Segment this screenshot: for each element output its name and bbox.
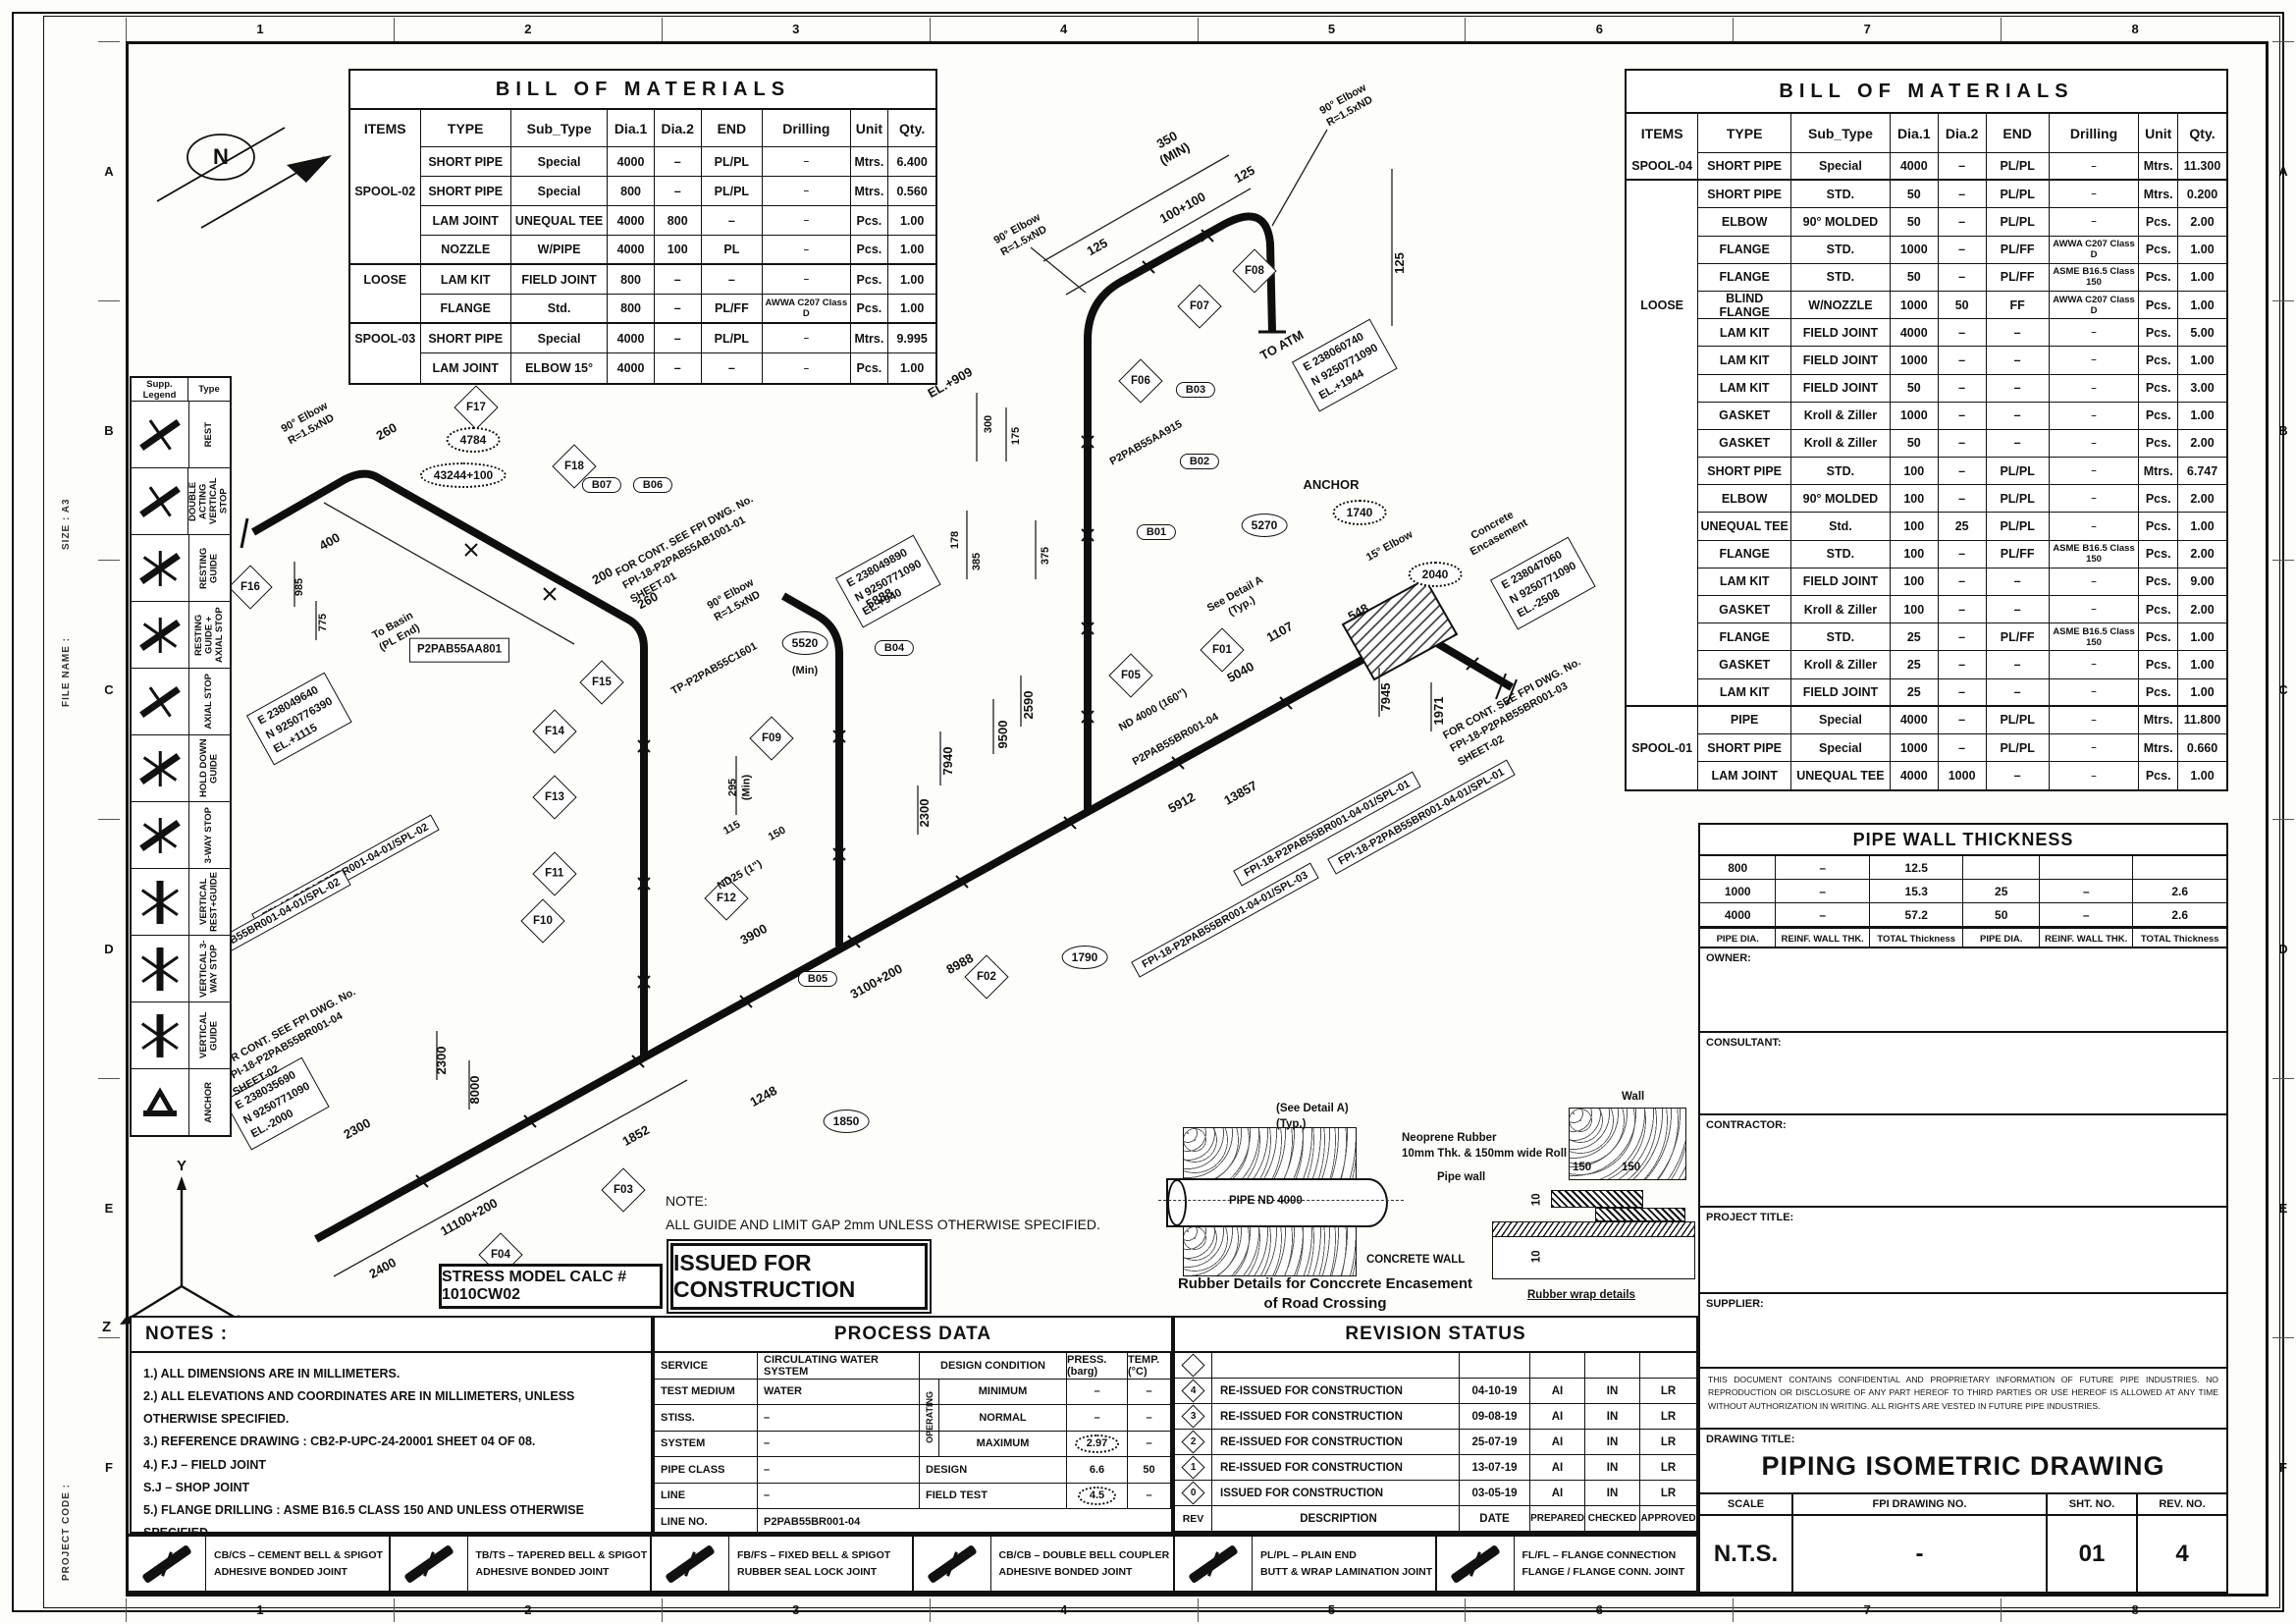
- note-line: 2.) ALL ELEVATIONS AND COORDINATES ARE I…: [143, 1385, 639, 1431]
- cell-subtype: Kroll & Ziller: [1791, 651, 1891, 678]
- dim-150-b: 150: [1622, 1161, 1640, 1176]
- table-row: FLANGE Std. 800 – PL/FF AWWA C207 Class …: [350, 295, 935, 324]
- footer-cell: APPROVED: [1640, 1506, 1696, 1532]
- pd-temp: –: [1128, 1484, 1171, 1510]
- support-symbol-icon: [132, 869, 189, 935]
- project-title-box: PROJECT TITLE:: [1698, 1208, 2228, 1294]
- joint-legend-item: FB/FS – FIXED BELL & SPIGOT RUBBER SEAL …: [652, 1537, 914, 1591]
- revision-footer: REV DESCRIPTION DATE PREPARED CHECKED AP…: [1175, 1506, 1696, 1532]
- cell-end: –: [702, 353, 764, 383]
- cell-dia2: –: [1939, 541, 1987, 568]
- support-legend-row: REST: [132, 402, 230, 468]
- page-title: PIPING ISOMETRIC DRAWING: [1706, 1451, 2220, 1482]
- note-line: 1.) ALL DIMENSIONS ARE IN MILLIMETERS.: [143, 1363, 639, 1385]
- rev-description: RE-ISSUED FOR CONSTRUCTION: [1212, 1379, 1460, 1404]
- cell-unit: Mtrs.: [851, 177, 889, 206]
- rev-description: ISSUED FOR CONSTRUCTION: [1212, 1481, 1460, 1506]
- axis-triad-icon: Y X Z: [102, 1158, 263, 1335]
- joint-symbol-icon: [1175, 1537, 1253, 1591]
- rev-approved: LR: [1640, 1430, 1696, 1455]
- support-symbol-icon: [132, 1069, 189, 1136]
- joint-code-label: TB/TS – TAPERED BELL & SPIGOT: [476, 1547, 651, 1564]
- cell-subtype: W/PIPE: [511, 236, 608, 265]
- cell-dia1: 800: [608, 265, 655, 295]
- table-row: LOOSE BLIND FLANGE W/NOZZLE 1000 50 FF A…: [1627, 292, 2226, 319]
- table-row: LAM JOINT UNEQUAL TEE 4000 1000 – – Pcs.…: [1627, 762, 2226, 789]
- cell-type: GASKET: [1698, 430, 1791, 458]
- cell-subtype: FIELD JOINT: [1791, 679, 1891, 707]
- revision-row: 1 RE-ISSUED FOR CONSTRUCTION 13-07-19 AI…: [1175, 1455, 1696, 1481]
- cell-drilling: –: [2050, 208, 2140, 236]
- cell: 12.5: [1870, 856, 1964, 880]
- cell-drilling: –: [2050, 375, 2140, 403]
- consultant-label: CONSULTANT:: [1706, 1037, 1782, 1049]
- note-line: 3.) REFERENCE DRAWING : CB2-P-UPC-24-200…: [143, 1431, 639, 1453]
- consultant-box: CONSULTANT:: [1698, 1033, 2228, 1115]
- cell-end: PL/PL: [702, 177, 764, 206]
- concrete-block-bottom: [1183, 1225, 1357, 1276]
- rubber-detail-caption: Rubber Details for Conccrete Encasement …: [1163, 1274, 1487, 1315]
- cell-qty: 2.00: [2178, 541, 2226, 568]
- cell-end: –: [1987, 430, 2050, 458]
- cell-end: –: [1987, 568, 2050, 596]
- col-header: Sub_Type: [1791, 114, 1891, 153]
- wall-thickness-body: 800 – 12.5 1000 – 15.3 25 – 2.6: [1700, 856, 2226, 927]
- support-type-label: 3-WAY STOP: [189, 802, 230, 868]
- cell-unit: Pcs.: [851, 353, 889, 383]
- joint-symbol-icon: [129, 1537, 206, 1591]
- cell-qty: 3.00: [2178, 375, 2226, 403]
- footer-cell: DESCRIPTION: [1212, 1506, 1460, 1532]
- cell-items: [1627, 513, 1698, 540]
- cell-type: GASKET: [1698, 596, 1791, 623]
- dim-label: 775: [317, 614, 331, 631]
- table-row: LAM KIT FIELD JOINT 100 – – – Pcs. 9.00: [1627, 568, 2226, 596]
- pd-value: WATER: [758, 1380, 920, 1406]
- cell: [2040, 856, 2134, 880]
- cell-subtype: Kroll & Ziller: [1791, 430, 1891, 458]
- cell-end: PL/PL: [702, 147, 764, 177]
- cell: [1963, 856, 2039, 880]
- col-header: TYPE: [1698, 114, 1791, 153]
- dim-label: 2300: [917, 799, 933, 828]
- revision-title: REVISION STATUS: [1175, 1318, 1696, 1353]
- pd-label: STISS.: [655, 1405, 758, 1432]
- cell-unit: Mtrs.: [2139, 181, 2178, 208]
- cell-dia2: –: [1939, 153, 1987, 181]
- cell-dia2: –: [1939, 264, 1987, 292]
- cell-type: LAM KIT: [1698, 319, 1791, 347]
- cell-type: FLANGE: [421, 295, 511, 324]
- cell-unit: Pcs.: [2139, 623, 2178, 651]
- cell-unit: Pcs.: [2139, 208, 2178, 236]
- rev-prepared: AI: [1530, 1379, 1585, 1404]
- dim-10-a: 10: [1530, 1193, 1546, 1206]
- cell-items: [1627, 181, 1698, 208]
- cell-dia1: 50: [1891, 208, 1939, 236]
- rev-no-label: REV. NO.: [2138, 1494, 2226, 1516]
- rubber-wrap-caption: Rubber wrap details: [1527, 1288, 1635, 1304]
- rev-date: 04-10-19: [1460, 1379, 1530, 1404]
- cell-drilling: –: [2050, 430, 2140, 458]
- drawing-no-label: FPI DRAWING NO.: [1793, 1494, 2046, 1516]
- cell-type: FLANGE: [1698, 264, 1791, 292]
- dim-cloud-43244: 43244+100: [420, 462, 507, 488]
- issued-for-construction-stamp: ISSUED FOR CONSTRUCTION: [670, 1243, 928, 1310]
- table-row: FLANGE STD. 25 – PL/FF ASME B16.5 Class …: [1627, 623, 2226, 651]
- dim-label: 375: [1040, 547, 1053, 565]
- cell: 1000: [1700, 880, 1776, 903]
- rev-description: RE-ISSUED FOR CONSTRUCTION: [1212, 1404, 1460, 1430]
- bubble-b04: B04: [875, 640, 914, 656]
- cell-dia1: 800: [608, 177, 655, 206]
- cell-dia2: –: [1939, 679, 1987, 707]
- pd-press: 2.97: [1067, 1432, 1128, 1458]
- cell-dia1: 4000: [1891, 707, 1939, 734]
- cell-drilling: –: [763, 324, 850, 353]
- cell-dia1: 800: [608, 295, 655, 324]
- cell-end: –: [1987, 762, 2050, 789]
- cell-drilling: –: [763, 353, 850, 383]
- rev-checked: IN: [1585, 1404, 1640, 1430]
- note-line: S.J – SHOP JOINT: [143, 1477, 639, 1499]
- table-row: SHORT PIPE STD. 50 – PL/PL – Mtrs. 0.200: [1627, 181, 2226, 208]
- cell-dia1: 25: [1891, 679, 1939, 707]
- rev-checked: IN: [1585, 1430, 1640, 1455]
- cell-qty: 1.00: [2178, 347, 2226, 374]
- cell-qty: 2.00: [2178, 208, 2226, 236]
- cell-type: SHORT PIPE: [421, 177, 511, 206]
- rev-approved: LR: [1640, 1379, 1696, 1404]
- joint-code-label: FL/FL – FLANGE CONNECTION: [1522, 1547, 1697, 1564]
- dim-label: 2590: [1021, 691, 1037, 720]
- cell-type: SHORT PIPE: [1698, 458, 1791, 485]
- neoprene-rubber-layer2: [1595, 1208, 1685, 1221]
- cell-unit: Pcs.: [2139, 485, 2178, 513]
- scale-row: SCALE N.T.S. FPI DRAWING NO. - SHT. NO. …: [1698, 1494, 2228, 1594]
- rev-no-value: 4: [2138, 1516, 2226, 1592]
- legend-header: Supp. Legend: [132, 378, 188, 401]
- cell-subtype: FIELD JOINT: [1791, 375, 1891, 403]
- cell-drilling: –: [2050, 762, 2140, 789]
- neoprene-rubber-layer1: [1551, 1190, 1643, 1208]
- pd-press-cloud: 4.5: [1078, 1487, 1116, 1505]
- cell-drilling: AWWA C207 Class D: [2050, 237, 2140, 264]
- left-bom-header: ITEMS TYPE Sub_Type Dia.1 Dia.2 END Dril…: [350, 110, 935, 147]
- rev-description: RE-ISSUED FOR CONSTRUCTION: [1212, 1455, 1460, 1481]
- cell-drilling: –: [2050, 458, 2140, 485]
- wall-label: Wall: [1622, 1090, 1644, 1106]
- cell-qty: 2.00: [2178, 596, 2226, 623]
- svg-text:Y: Y: [177, 1158, 187, 1174]
- support-legend-row: AXIAL STOP: [132, 669, 230, 735]
- cell-items: [350, 147, 421, 177]
- rev-prepared: AI: [1530, 1430, 1585, 1455]
- cell-items: [1627, 568, 1698, 596]
- joint-legend-item: TB/TS – TAPERED BELL & SPIGOT ADHESIVE B…: [391, 1537, 653, 1591]
- cell: –: [1776, 903, 1870, 927]
- dim-label: 2300: [434, 1047, 450, 1075]
- cell-dia2: –: [1939, 319, 1987, 347]
- cell-drilling: –: [2050, 734, 2140, 762]
- footer-cell: REV: [1175, 1506, 1212, 1532]
- col-header: Dia.2: [655, 110, 702, 147]
- support-symbol-icon: [132, 468, 188, 534]
- cell-qty: 2.00: [2178, 430, 2226, 458]
- svg-text:N: N: [213, 144, 229, 169]
- table-row: 4000 – 57.2 50 – 2.6: [1700, 903, 2226, 927]
- cell-unit: Pcs.: [2139, 347, 2178, 374]
- cell-dia1: 4000: [608, 353, 655, 383]
- revision-row: 2 RE-ISSUED FOR CONSTRUCTION 25-07-19 AI…: [1175, 1430, 1696, 1455]
- cell-type: ELBOW: [1698, 485, 1791, 513]
- cell-qty: 9.995: [888, 324, 935, 353]
- cell-type: SHORT PIPE: [1698, 734, 1791, 762]
- pd-press-header: PRESS. (barg): [1067, 1353, 1128, 1380]
- cell-subtype: STD.: [1791, 181, 1891, 208]
- dim-label: 385: [971, 553, 985, 570]
- owner-box: OWNER:: [1698, 947, 2228, 1033]
- drawing-no-value: -: [1793, 1516, 2046, 1592]
- support-legend-row: RESTING GUIDE + AXIAL STOP: [132, 602, 230, 669]
- cell-unit: Pcs.: [2139, 403, 2178, 430]
- line-no-value: P2PAB55BR001-04: [758, 1509, 1171, 1536]
- dim-label: 295 (Min): [726, 775, 754, 800]
- cell-qty: 1.00: [2178, 513, 2226, 540]
- cell-dia1: 100: [1891, 513, 1939, 540]
- rev-date: 03-05-19: [1460, 1481, 1530, 1506]
- bubble-b01: B01: [1137, 524, 1176, 540]
- cell-end: PL/PL: [1987, 208, 2050, 236]
- cell-dia1: 4000: [608, 236, 655, 265]
- cell-qty: 2.00: [2178, 485, 2226, 513]
- support-type-label: DOUBLE ACTING VERTICAL STOP: [188, 468, 230, 534]
- cell-unit: Pcs.: [2139, 292, 2178, 319]
- drawing-title-box: DRAWING TITLE: PIPING ISOMETRIC DRAWING: [1698, 1430, 2228, 1494]
- cell-type: LAM KIT: [421, 265, 511, 295]
- cell-subtype: Special: [1791, 734, 1891, 762]
- table-row: LOOSE LAM KIT FIELD JOINT 800 – – – Pcs.…: [350, 265, 935, 295]
- cell-unit: Pcs.: [2139, 568, 2178, 596]
- cell-dia2: –: [1939, 430, 1987, 458]
- pd-value: CIRCULATING WATER SYSTEM: [758, 1353, 920, 1380]
- cell-drilling: –: [2050, 153, 2140, 181]
- table-row: ELBOW 90° MOLDED 50 – PL/PL – Pcs. 2.00: [1627, 208, 2226, 236]
- cell-dia2: –: [1939, 375, 1987, 403]
- cell-unit: Pcs.: [2139, 651, 2178, 678]
- svg-text:Z: Z: [102, 1319, 111, 1335]
- neoprene-label: Neoprene Rubber 10mm Thk. & 150mm wide R…: [1402, 1131, 1567, 1162]
- cell-dia1: 4000: [1891, 319, 1939, 347]
- cell-dia1: 4000: [608, 206, 655, 236]
- drawing-sheet: 12345678 12345678 ABCDEF ABCDEF SIZE : A…: [0, 0, 2296, 1624]
- joint-desc-label: ADHESIVE BONDED JOINT: [999, 1564, 1174, 1581]
- footer-cell: PREPARED: [1530, 1506, 1585, 1532]
- cell-dia1: 25: [1891, 651, 1939, 678]
- cell-drilling: ASME B16.5 Class 150: [2050, 541, 2140, 568]
- support-symbol-icon: [132, 402, 189, 467]
- cell-qty: 6.747: [2178, 458, 2226, 485]
- type-header: Type: [188, 378, 230, 401]
- table-row: GASKET Kroll & Ziller 1000 – – – Pcs. 1.…: [1627, 403, 2226, 430]
- table-row: 800 – 12.5: [1700, 856, 2226, 880]
- cell: 800: [1700, 856, 1776, 880]
- cell-dia1: 100: [1891, 458, 1939, 485]
- cell-unit: Pcs.: [2139, 541, 2178, 568]
- cell-dia2: –: [1939, 596, 1987, 623]
- cell-subtype: Special: [1791, 153, 1891, 181]
- cell-dia2: 1000: [1939, 762, 1987, 789]
- revision-row: 3 RE-ISSUED FOR CONSTRUCTION 09-08-19 AI…: [1175, 1404, 1696, 1430]
- cell-items: [1627, 237, 1698, 264]
- rev-number: 2: [1175, 1430, 1212, 1455]
- cell-items: SPOOL-04: [1627, 153, 1698, 181]
- notes-title: NOTES :: [132, 1318, 651, 1353]
- cell-unit: Pcs.: [851, 295, 889, 324]
- cell-items: [1627, 347, 1698, 374]
- support-type-label: VERTICAL 3-WAY STOP: [189, 936, 230, 1001]
- tag-box-aa801: P2PAB55AA801: [409, 638, 509, 663]
- cell-dia2: –: [1939, 707, 1987, 734]
- cell-end: PL/FF: [1987, 264, 2050, 292]
- cell-items: [1627, 403, 1698, 430]
- support-symbol-icon: [132, 936, 189, 1001]
- cell-qty: 1.00: [2178, 237, 2226, 264]
- pd-value: –: [758, 1432, 920, 1458]
- dim-label: 7945: [1378, 683, 1394, 712]
- cell-drilling: –: [763, 236, 850, 265]
- pd-value: –: [758, 1405, 920, 1432]
- dim-label: 8000: [467, 1076, 483, 1105]
- joint-symbol-icon: [652, 1537, 729, 1591]
- pipe-wall-label: Pipe wall: [1437, 1170, 1485, 1186]
- cell-unit: Pcs.: [2139, 513, 2178, 540]
- cell-subtype: 90° MOLDED: [1791, 485, 1891, 513]
- col-header: Drilling: [2050, 114, 2140, 153]
- table-row: SPOOL-01 SHORT PIPE Special 1000 – PL/PL…: [1627, 734, 2226, 762]
- cell-items: [350, 236, 421, 265]
- cell-qty: 1.00: [2178, 651, 2226, 678]
- pipe-wall-hatch: [1492, 1221, 1695, 1237]
- cell-type: SHORT PIPE: [1698, 181, 1791, 208]
- dim-circle-1790: 1790: [1062, 946, 1108, 969]
- dim-cloud-4784: 4784: [447, 427, 501, 453]
- cell-type: LAM JOINT: [1698, 762, 1791, 789]
- cell-dia1: 1000: [1891, 347, 1939, 374]
- dim-label: 985: [294, 578, 307, 596]
- cell-subtype: FIELD JOINT: [1791, 319, 1891, 347]
- cell-type: UNEQUAL TEE: [1698, 513, 1791, 540]
- pd-press: 4.5: [1067, 1484, 1128, 1510]
- cell: 25: [1963, 880, 2039, 903]
- cell-unit: Pcs.: [2139, 430, 2178, 458]
- pd-cond-header: DESIGN CONDITION: [920, 1353, 1067, 1380]
- support-type-label: HOLD DOWN GUIDE: [189, 735, 230, 801]
- stress-model-stamp: STRESS MODEL CALC # 1010CW02: [439, 1264, 663, 1309]
- support-legend-row: HOLD DOWN GUIDE: [132, 735, 230, 802]
- support-type-label: VERTICAL REST+GUIDE: [189, 869, 230, 935]
- cell-dia2: –: [1939, 458, 1987, 485]
- dim-label: 175: [1010, 427, 1024, 445]
- cell-dia2: 50: [1939, 292, 1987, 319]
- cell-drilling: –: [2050, 485, 2140, 513]
- pd-temp: 50: [1128, 1457, 1171, 1484]
- note-line: 4.) F.J – FIELD JOINT: [143, 1454, 639, 1477]
- cell-end: PL/PL: [1987, 707, 2050, 734]
- pd-cond: MAXIMUM: [920, 1432, 1067, 1458]
- left-bom-body: SHORT PIPE Special 4000 – PL/PL – Mtrs. …: [350, 147, 935, 383]
- cell-qty: 11.300: [2178, 153, 2226, 181]
- col-header: Dia.2: [1939, 114, 1987, 153]
- cell-subtype: Std.: [1791, 513, 1891, 540]
- table-row: FLANGE STD. 1000 – PL/FF AWWA C207 Class…: [1627, 237, 2226, 264]
- cell-dia2: –: [655, 353, 702, 383]
- cell-type: GASKET: [1698, 651, 1791, 678]
- col-header: Qty.: [2178, 114, 2226, 153]
- revision-row: [1175, 1353, 1696, 1379]
- table-row: FLANGE STD. 50 – PL/FF ASME B16.5 Class …: [1627, 264, 2226, 292]
- cell-items: LOOSE: [1627, 292, 1698, 319]
- cell-items: [1627, 651, 1698, 678]
- cell: –: [2040, 880, 2134, 903]
- cell-type: SHORT PIPE: [421, 147, 511, 177]
- joint-code-label: FB/FS – FIXED BELL & SPIGOT: [737, 1547, 912, 1564]
- cell-type: LAM KIT: [1698, 375, 1791, 403]
- cell-dia2: –: [1939, 181, 1987, 208]
- rev-date: [1460, 1353, 1530, 1379]
- right-bom-body: SPOOL-04 SHORT PIPE Special 4000 – PL/PL…: [1627, 153, 2226, 789]
- rev-checked: [1585, 1353, 1640, 1379]
- cell-subtype: Kroll & Ziller: [1791, 403, 1891, 430]
- cell-type: LAM KIT: [1698, 679, 1791, 707]
- table-row: LAM KIT FIELD JOINT 50 – – – Pcs. 3.00: [1627, 375, 2226, 403]
- revision-body: 4 RE-ISSUED FOR CONSTRUCTION 04-10-19 AI…: [1175, 1353, 1696, 1506]
- cell-drilling: –: [2050, 707, 2140, 734]
- cell-qty: 1.00: [888, 236, 935, 265]
- process-data-title: PROCESS DATA: [655, 1318, 1171, 1353]
- bubble-b03: B03: [1176, 382, 1215, 398]
- col-header: Dia.1: [608, 110, 655, 147]
- cell-end: –: [1987, 596, 2050, 623]
- cell-dia2: –: [1939, 485, 1987, 513]
- confidentiality-box: THIS DOCUMENT CONTAINS CONFIDENTIAL AND …: [1698, 1369, 2228, 1430]
- owner-label: OWNER:: [1706, 952, 1751, 964]
- cell-end: –: [1987, 679, 2050, 707]
- table-row: UNEQUAL TEE Std. 100 25 PL/PL – Pcs. 1.0…: [1627, 513, 2226, 540]
- supports-legend-body: REST DOUBLE ACTING VERTICAL STOP RESTING…: [132, 402, 230, 1136]
- support-type-label: ANCHOR: [189, 1069, 230, 1136]
- cell-qty: 9.00: [2178, 568, 2226, 596]
- joint-legend-strip: CB/CS – CEMENT BELL & SPIGOT ADHESIVE BO…: [126, 1534, 1698, 1594]
- cell-dia1: 25: [1891, 623, 1939, 651]
- table-row: PIPE Special 4000 – PL/PL – Mtrs. 11.800: [1627, 707, 2226, 734]
- cell-subtype: STD.: [1791, 623, 1891, 651]
- cell-unit: Pcs.: [2139, 319, 2178, 347]
- rev-checked: IN: [1585, 1481, 1640, 1506]
- pd-cond: FIELD TEST: [920, 1484, 1067, 1510]
- cell-qty: 6.400: [888, 147, 935, 177]
- project-title-label: PROJECT TITLE:: [1706, 1212, 1793, 1223]
- pd-press: –: [1067, 1405, 1128, 1432]
- cell-subtype: 90° MOLDED: [1791, 208, 1891, 236]
- cell-items: [1627, 707, 1698, 734]
- col-header: Unit: [2139, 114, 2178, 153]
- cell-end: –: [1987, 347, 2050, 374]
- cell-items: SPOOL-01: [1627, 734, 1698, 762]
- table-row: SHORT PIPE Special 4000 – PL/PL – Mtrs. …: [350, 147, 935, 177]
- joint-legend-item: FL/FL – FLANGE CONNECTION FLANGE / FLANG…: [1437, 1537, 1697, 1591]
- cell-dia1: 50: [1891, 181, 1939, 208]
